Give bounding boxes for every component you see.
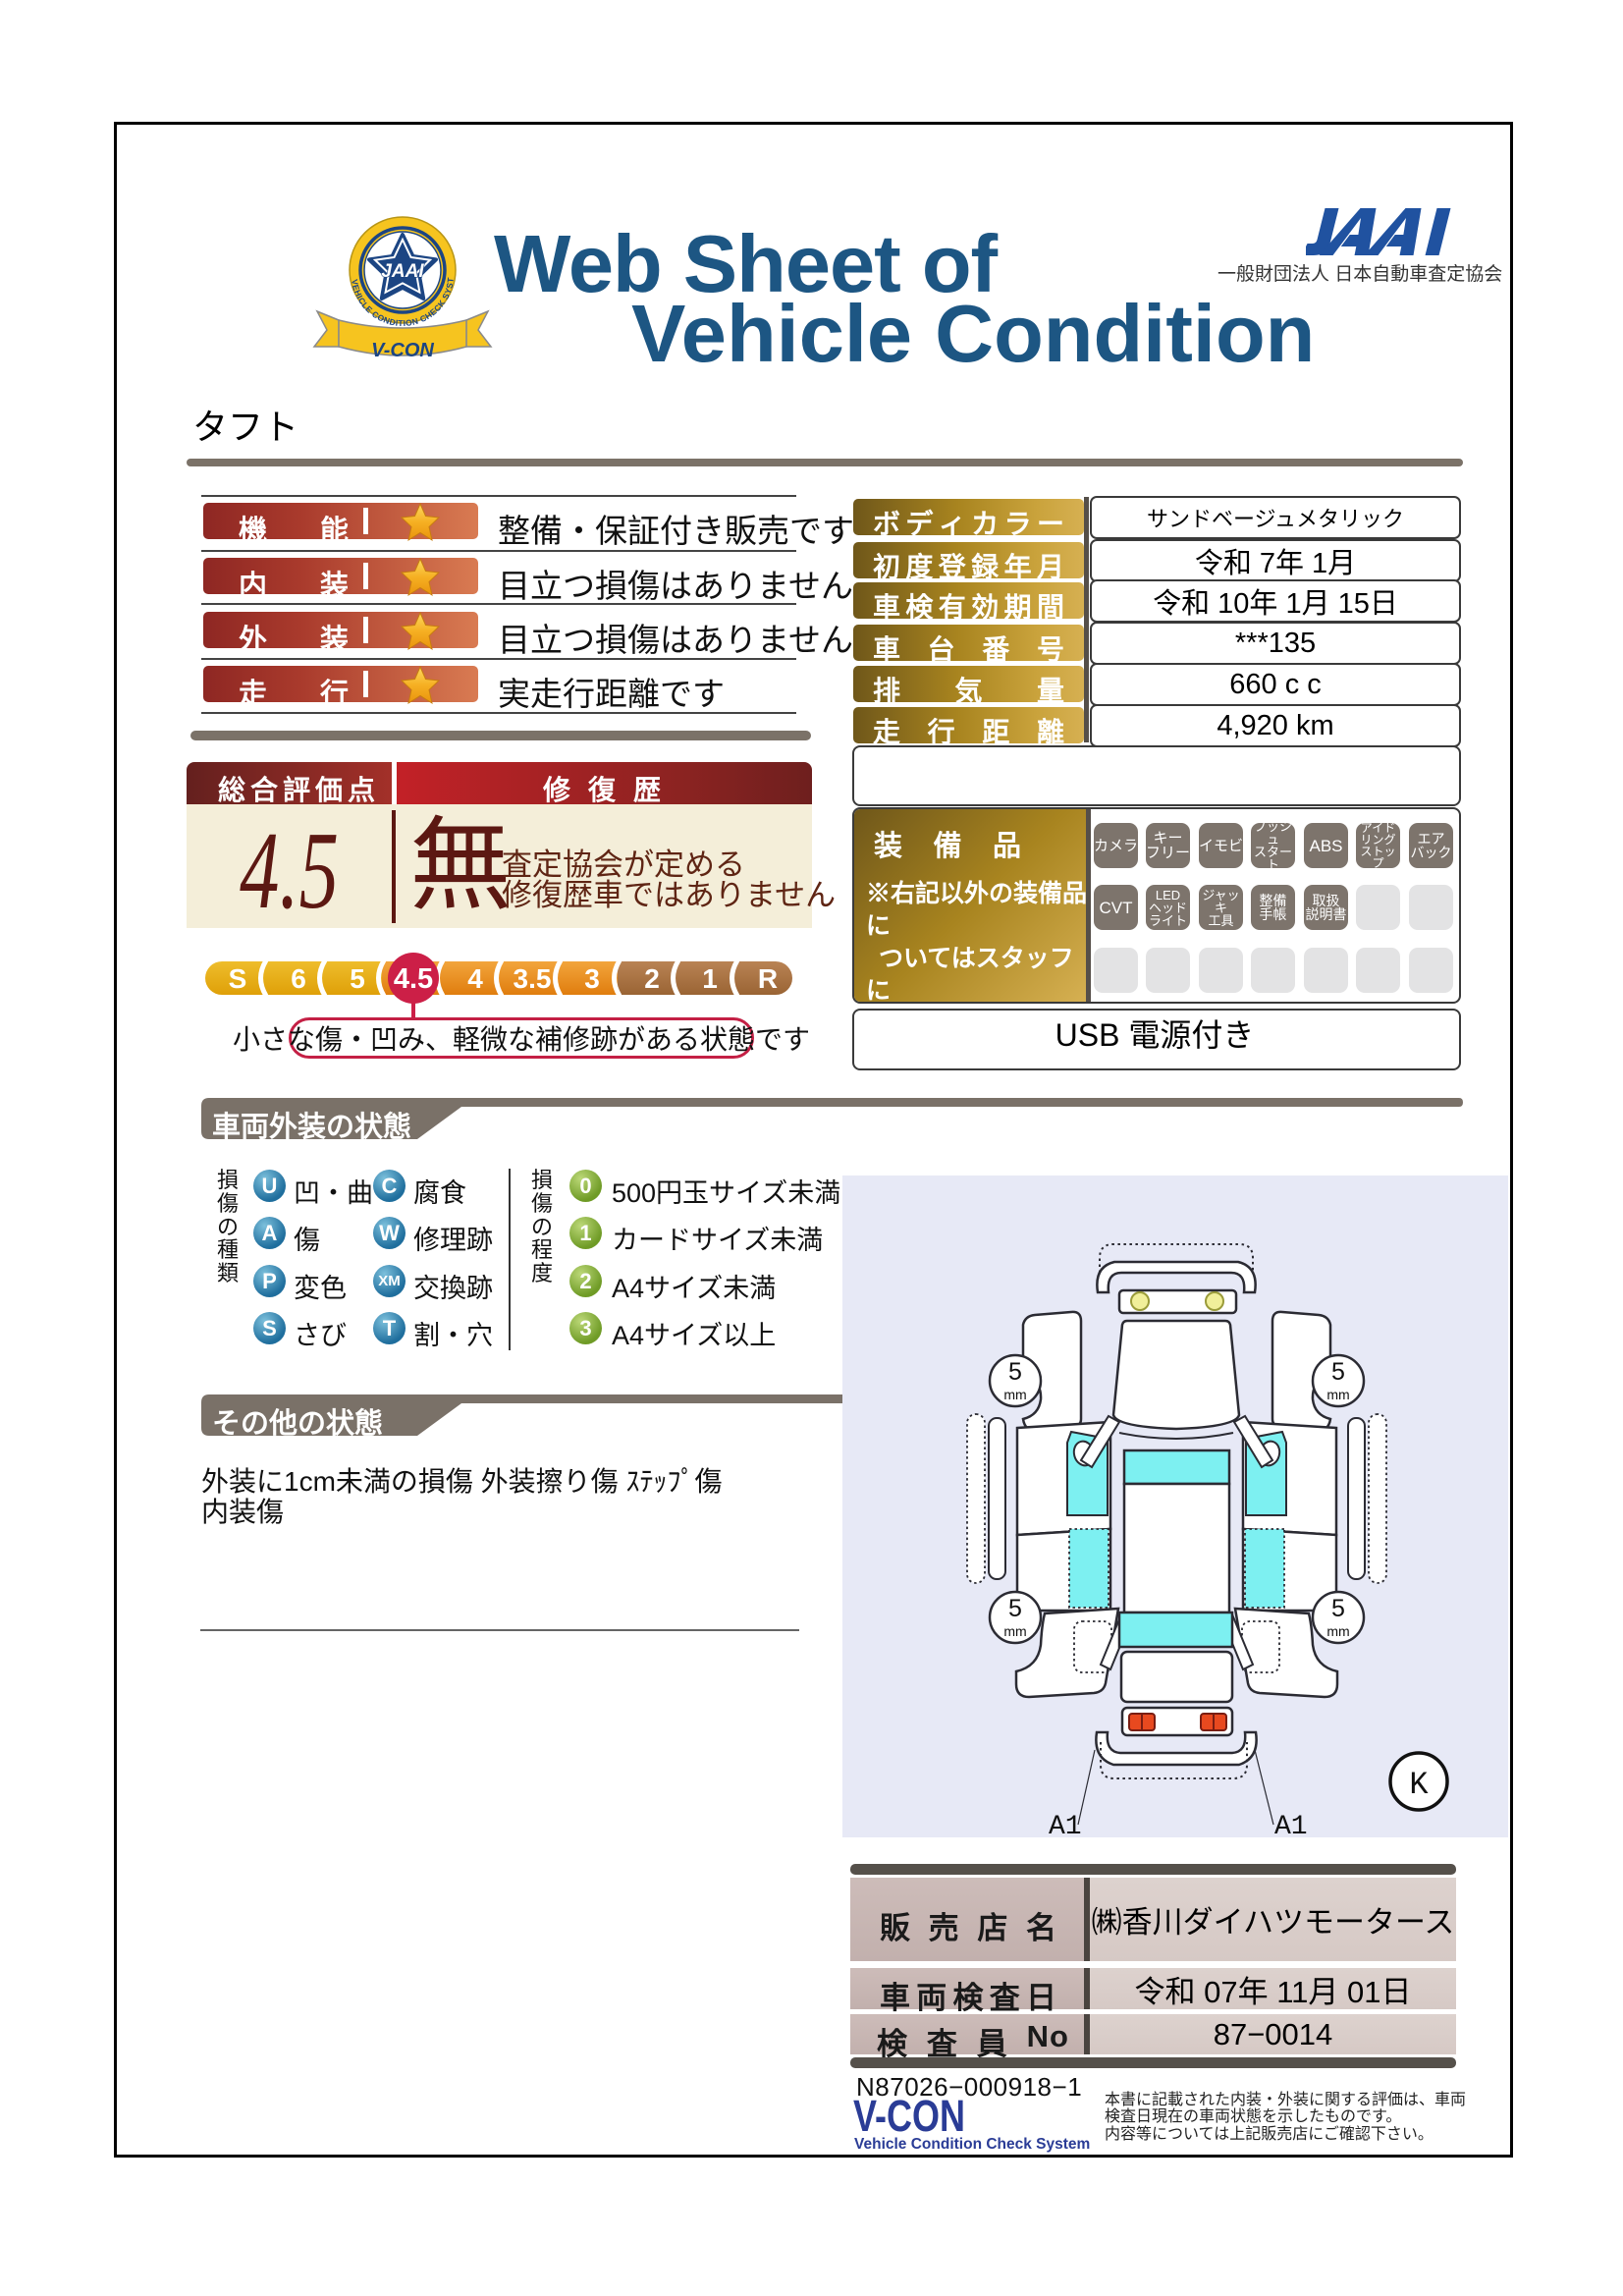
svg-text:JAAI: JAAI bbox=[381, 261, 424, 282]
svg-text:5: 5 bbox=[1008, 1595, 1022, 1622]
svg-text:3: 3 bbox=[584, 963, 600, 994]
svg-text:4.5: 4.5 bbox=[394, 963, 433, 995]
svg-text:5: 5 bbox=[1331, 1358, 1345, 1386]
svg-text:6: 6 bbox=[291, 963, 306, 994]
svg-text:A1: A1 bbox=[1274, 1812, 1308, 1837]
svg-text:3.5: 3.5 bbox=[514, 963, 552, 994]
svg-text:5: 5 bbox=[350, 963, 365, 994]
svg-text:2: 2 bbox=[644, 963, 660, 994]
svg-text:K: K bbox=[1409, 1767, 1429, 1803]
svg-text:S: S bbox=[229, 963, 247, 994]
svg-text:mm: mm bbox=[1326, 1387, 1349, 1402]
svg-text:1: 1 bbox=[702, 963, 718, 994]
svg-text:mm: mm bbox=[1003, 1387, 1026, 1402]
svg-text:mm: mm bbox=[1326, 1623, 1349, 1639]
svg-text:V-CON: V-CON bbox=[371, 340, 434, 361]
svg-text:4: 4 bbox=[467, 963, 483, 994]
svg-text:A1: A1 bbox=[1049, 1812, 1082, 1837]
svg-text:R: R bbox=[758, 963, 778, 994]
svg-text:mm: mm bbox=[1003, 1623, 1026, 1639]
svg-text:5: 5 bbox=[1008, 1358, 1022, 1386]
svg-text:5: 5 bbox=[1331, 1595, 1345, 1622]
